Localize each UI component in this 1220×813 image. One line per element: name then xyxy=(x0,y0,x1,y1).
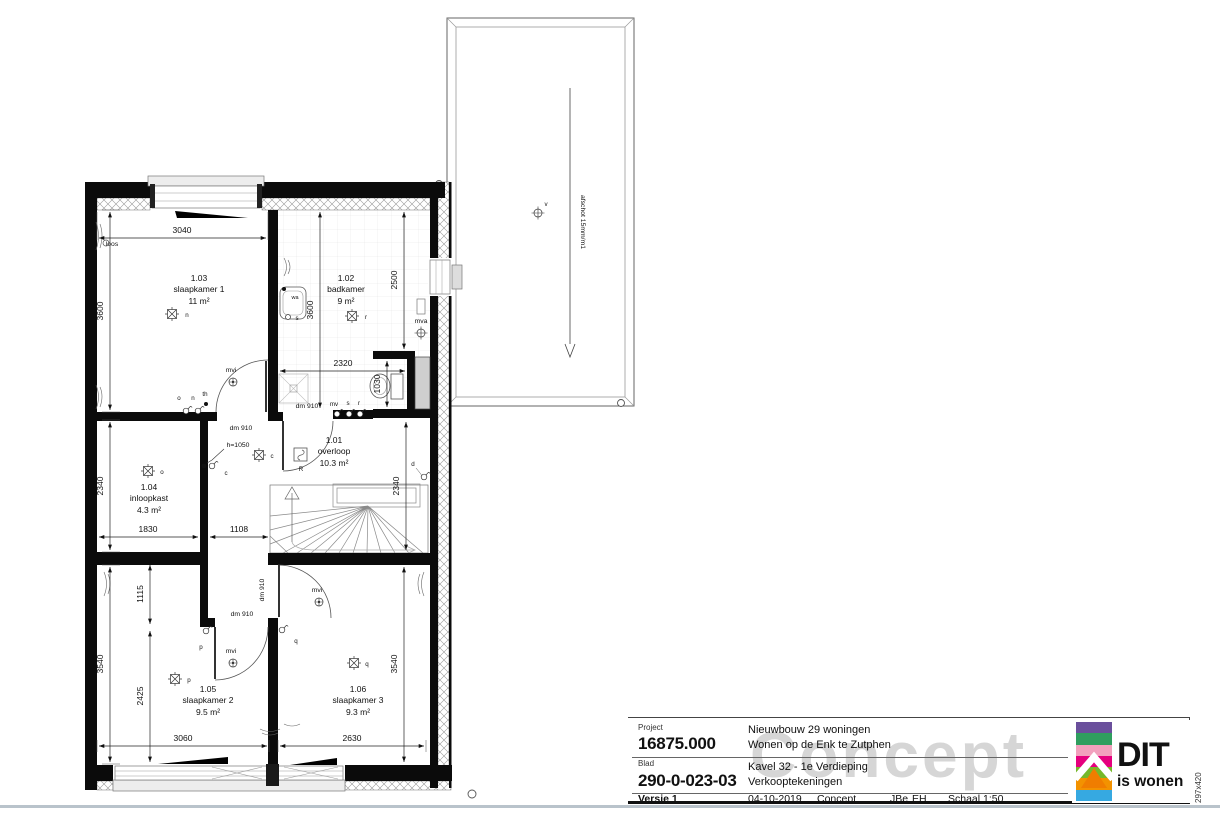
switch-letter: th xyxy=(202,391,208,398)
door-size-label: dm 910 xyxy=(259,578,266,601)
light-letter: s xyxy=(295,315,298,322)
room-label-overloop: 1.01 overloop 10.3 m² xyxy=(318,435,351,468)
svg-text:1.04: 1.04 xyxy=(141,482,158,492)
door-size-label: dm 910 xyxy=(230,425,253,432)
dim-toilet-niche: 1030 xyxy=(372,374,382,393)
ceiling-light-icon xyxy=(347,656,361,670)
logo-house-icon xyxy=(1076,722,1112,801)
dim-inloopkast-width: 1830 xyxy=(139,524,158,534)
svg-text:slaapkamer 3: slaapkamer 3 xyxy=(332,695,383,705)
drawing-sheet: Concept xyxy=(0,0,1220,813)
logo-text-sub: is wonen xyxy=(1117,773,1183,791)
dim-sk1-height: 3600 xyxy=(95,301,105,320)
svg-text:badkamer: badkamer xyxy=(327,284,365,294)
date: 04-10-2019 xyxy=(748,793,802,805)
svg-text:9.5 m²: 9.5 m² xyxy=(196,707,220,717)
rainwater-outlet-icon xyxy=(618,400,625,407)
dit-is-wonen-logo: DIT is wonen xyxy=(1072,720,1190,803)
switch-icon xyxy=(203,626,212,634)
smoke-detector-icon xyxy=(294,448,307,461)
light-letter: p xyxy=(187,677,191,684)
duct-shaft xyxy=(415,357,430,409)
dim-overloop-right: 2340 xyxy=(391,476,401,495)
dim-corridor: 1115 xyxy=(135,585,145,603)
conduit-point xyxy=(202,464,207,469)
staircase xyxy=(270,484,428,554)
ceiling-light-icon xyxy=(165,307,179,321)
svg-text:4.3 m²: 4.3 m² xyxy=(137,505,161,515)
switch-letter: r xyxy=(358,400,360,407)
light-letter: n xyxy=(185,312,189,319)
door-arc-slaapkamer3 xyxy=(278,565,331,618)
svg-text:inloopkast: inloopkast xyxy=(130,493,169,503)
blad-label: Blad xyxy=(638,759,654,768)
svg-text:1.02: 1.02 xyxy=(338,273,355,283)
checked-by: EH xyxy=(912,793,927,805)
room-label-slaapkamer2: 1.05 slaapkamer 2 9.5 m² xyxy=(182,684,233,717)
project-name-line2: Wonen op de Enk te Zutphen xyxy=(748,739,891,751)
mvi-fan-icon xyxy=(315,598,323,606)
switch-icon xyxy=(421,472,430,480)
room-label-slaapkamer3: 1.06 slaapkamer 3 9.3 m² xyxy=(332,684,383,717)
svg-text:1.05: 1.05 xyxy=(200,684,217,694)
dim-badkamer-right: 2500 xyxy=(389,270,399,289)
light-letter: r xyxy=(365,314,367,321)
status: Concept xyxy=(817,793,856,805)
window-swing-wedge xyxy=(175,211,248,218)
wall-light-icon xyxy=(286,315,291,320)
kneewall-height-label: h=1050 xyxy=(227,442,250,449)
project-name-line1: Nieuwbouw 29 woningen xyxy=(748,724,870,736)
svg-text:overloop: overloop xyxy=(318,446,351,456)
paper-edge-line xyxy=(0,805,1220,808)
switch-letter: q xyxy=(294,638,298,645)
sheet-title-line1: Kavel 32 - 1e Verdieping xyxy=(748,761,868,773)
dim-badkamer-height: 3600 xyxy=(305,300,315,319)
window-swing-wedge xyxy=(158,757,228,764)
svg-text:slaapkamer 1: slaapkamer 1 xyxy=(173,284,224,294)
svg-text:1.01: 1.01 xyxy=(326,435,343,445)
svg-text:1.03: 1.03 xyxy=(191,273,208,283)
switch-letter: mv xyxy=(330,401,339,408)
ceiling-light-icon xyxy=(168,672,182,686)
dim-badkamer-width: 2320 xyxy=(334,358,353,368)
drawn-by: JBe xyxy=(890,793,908,805)
project-number: 16875.000 xyxy=(638,734,716,754)
dim-inloopkast-height: 2340 xyxy=(95,476,105,495)
svg-text:11 m²: 11 m² xyxy=(188,296,209,306)
switch-letter: d xyxy=(411,461,415,468)
flat-roof-plan: afschot 15mm/m1 v xyxy=(436,18,635,798)
roof-slope-label: afschot 15mm/m1 xyxy=(579,195,586,249)
switch-letter: s xyxy=(346,400,349,407)
dim-sk3-height: 3540 xyxy=(389,654,399,673)
title-block-divider xyxy=(632,757,1068,758)
washbasin: wa xyxy=(280,287,306,319)
dim-sk2-inner: 2425 xyxy=(135,686,145,705)
room-label-slaapkamer1: 1.03 slaapkamer 1 11 m² xyxy=(173,273,224,306)
dim-sk3-width: 2630 xyxy=(343,733,362,743)
versie: Versie 1 xyxy=(638,793,678,805)
door-arc-slaapkamer2 xyxy=(215,627,268,680)
project-label: Project xyxy=(638,723,663,732)
ceiling-light-icon xyxy=(141,464,155,478)
switch-letter: c xyxy=(224,470,227,477)
svg-text:10.3 m²: 10.3 m² xyxy=(320,458,349,468)
door-size-label: dm 910 xyxy=(231,611,254,618)
room-label-inloopkast: 1.04 inloopkast 4.3 m² xyxy=(130,482,169,515)
svg-text:9.3 m²: 9.3 m² xyxy=(346,707,370,717)
switch-letter: o xyxy=(177,395,181,402)
rainwater-outlet-icon xyxy=(468,790,476,798)
window-swing-wedge xyxy=(290,758,337,765)
mvi-label: mvi xyxy=(312,587,323,594)
light-letter: q xyxy=(365,661,369,668)
dim-sk2-width: 3060 xyxy=(174,733,193,743)
paper-size-label: 297x420 xyxy=(1194,761,1204,803)
washbasin-label: wa xyxy=(290,295,299,301)
mvi-fan-icon xyxy=(229,659,237,667)
window-bottom xyxy=(113,757,345,791)
mva-label: mva xyxy=(415,318,428,325)
window-slaapkamer1 xyxy=(148,176,264,218)
sheet-title-line2: Verkooptekeningen xyxy=(748,776,842,788)
mvi-label: mvi xyxy=(226,648,237,655)
door-size-label: dm 910 xyxy=(296,403,319,410)
ceiling-light-icon xyxy=(252,448,266,462)
floorplan-canvas: afschot 15mm/m1 v xyxy=(0,0,1220,813)
door-arc-slaapkamer1 xyxy=(216,360,268,412)
blad-number: 290-0-023-03 xyxy=(638,771,736,791)
scale: Schaal 1:50 xyxy=(948,793,1003,805)
svg-text:slaapkamer 2: slaapkamer 2 xyxy=(182,695,233,705)
svg-text:9 m²: 9 m² xyxy=(338,296,355,306)
loos-label: loos xyxy=(106,241,119,248)
dim-sk2-height: 3540 xyxy=(95,654,105,673)
logo-text-main: DIT xyxy=(1117,736,1169,775)
switch-icon xyxy=(209,461,218,469)
light-letter: c xyxy=(270,453,273,460)
dim-hall-width: 1108 xyxy=(230,524,249,534)
switch-letter: p xyxy=(199,644,203,651)
mvi-fan-icon xyxy=(229,378,237,386)
light-letter: o xyxy=(160,469,164,476)
smoke-detector-letter: R xyxy=(299,466,304,473)
dim-top-width: 3040 xyxy=(173,225,192,235)
mvi-label: mvi xyxy=(226,367,237,374)
switch-letter: n xyxy=(191,395,195,402)
svg-text:1.06: 1.06 xyxy=(350,684,367,694)
switch-icon xyxy=(279,625,288,633)
thermostat-dot xyxy=(204,402,208,406)
